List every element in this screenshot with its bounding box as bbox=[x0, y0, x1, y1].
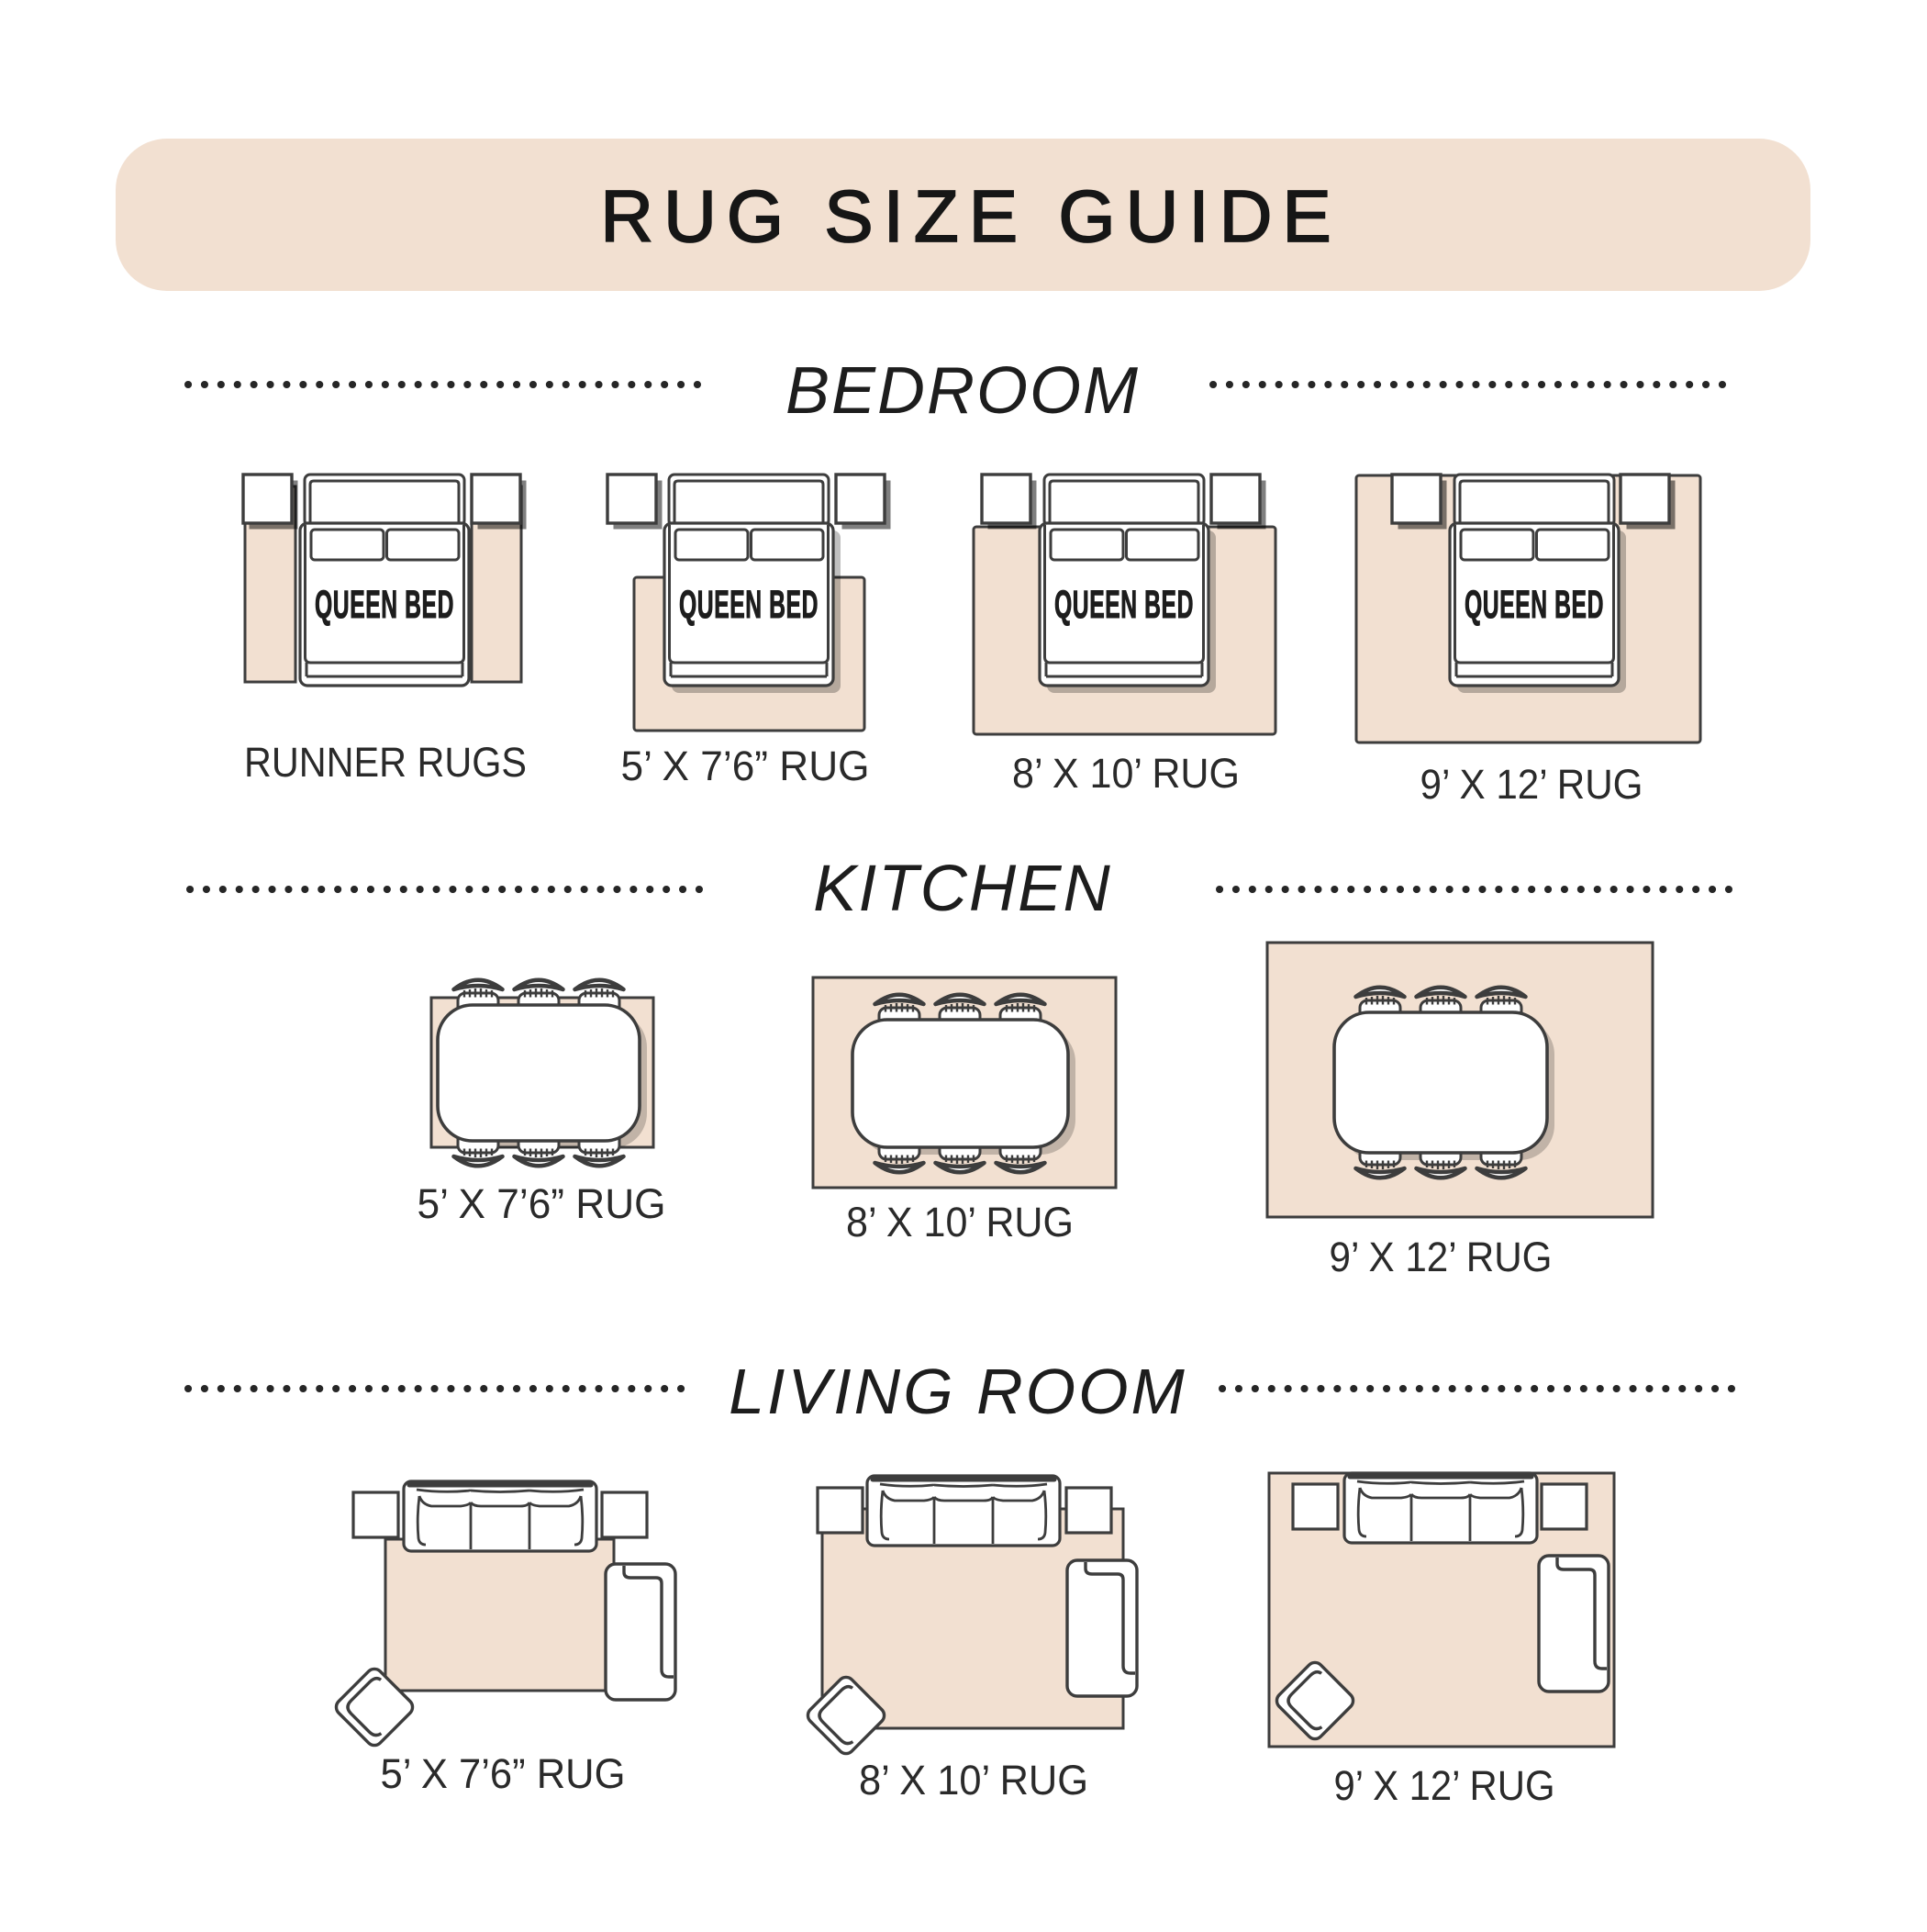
svg-text:BEDROOM: BEDROOM bbox=[785, 354, 1140, 428]
svg-text:LIVING ROOM: LIVING ROOM bbox=[729, 1356, 1187, 1427]
svg-text:8’ X 10’ RUG: 8’ X 10’ RUG bbox=[859, 1757, 1088, 1804]
svg-text:9’ X 12’ RUG: 9’ X 12’ RUG bbox=[1420, 761, 1643, 808]
svg-text:KITCHEN: KITCHEN bbox=[813, 853, 1112, 925]
svg-text:RUG SIZE GUIDE: RUG SIZE GUIDE bbox=[600, 175, 1341, 257]
svg-text:5’ X 7’6” RUG: 5’ X 7’6” RUG bbox=[418, 1180, 666, 1227]
svg-text:9’ X 12’ RUG: 9’ X 12’ RUG bbox=[1334, 1762, 1555, 1809]
svg-text:5’ X 7’6” RUG: 5’ X 7’6” RUG bbox=[381, 1750, 626, 1797]
svg-text:8’ X 10’ RUG: 8’ X 10’ RUG bbox=[1012, 750, 1240, 797]
svg-text:RUNNER RUGS: RUNNER RUGS bbox=[244, 739, 527, 786]
svg-text:5’ X 7’6” RUG: 5’ X 7’6” RUG bbox=[621, 743, 870, 789]
svg-text:8’ X 10’ RUG: 8’ X 10’ RUG bbox=[846, 1199, 1074, 1245]
svg-text:9’ X 12’ RUG: 9’ X 12’ RUG bbox=[1330, 1234, 1553, 1280]
